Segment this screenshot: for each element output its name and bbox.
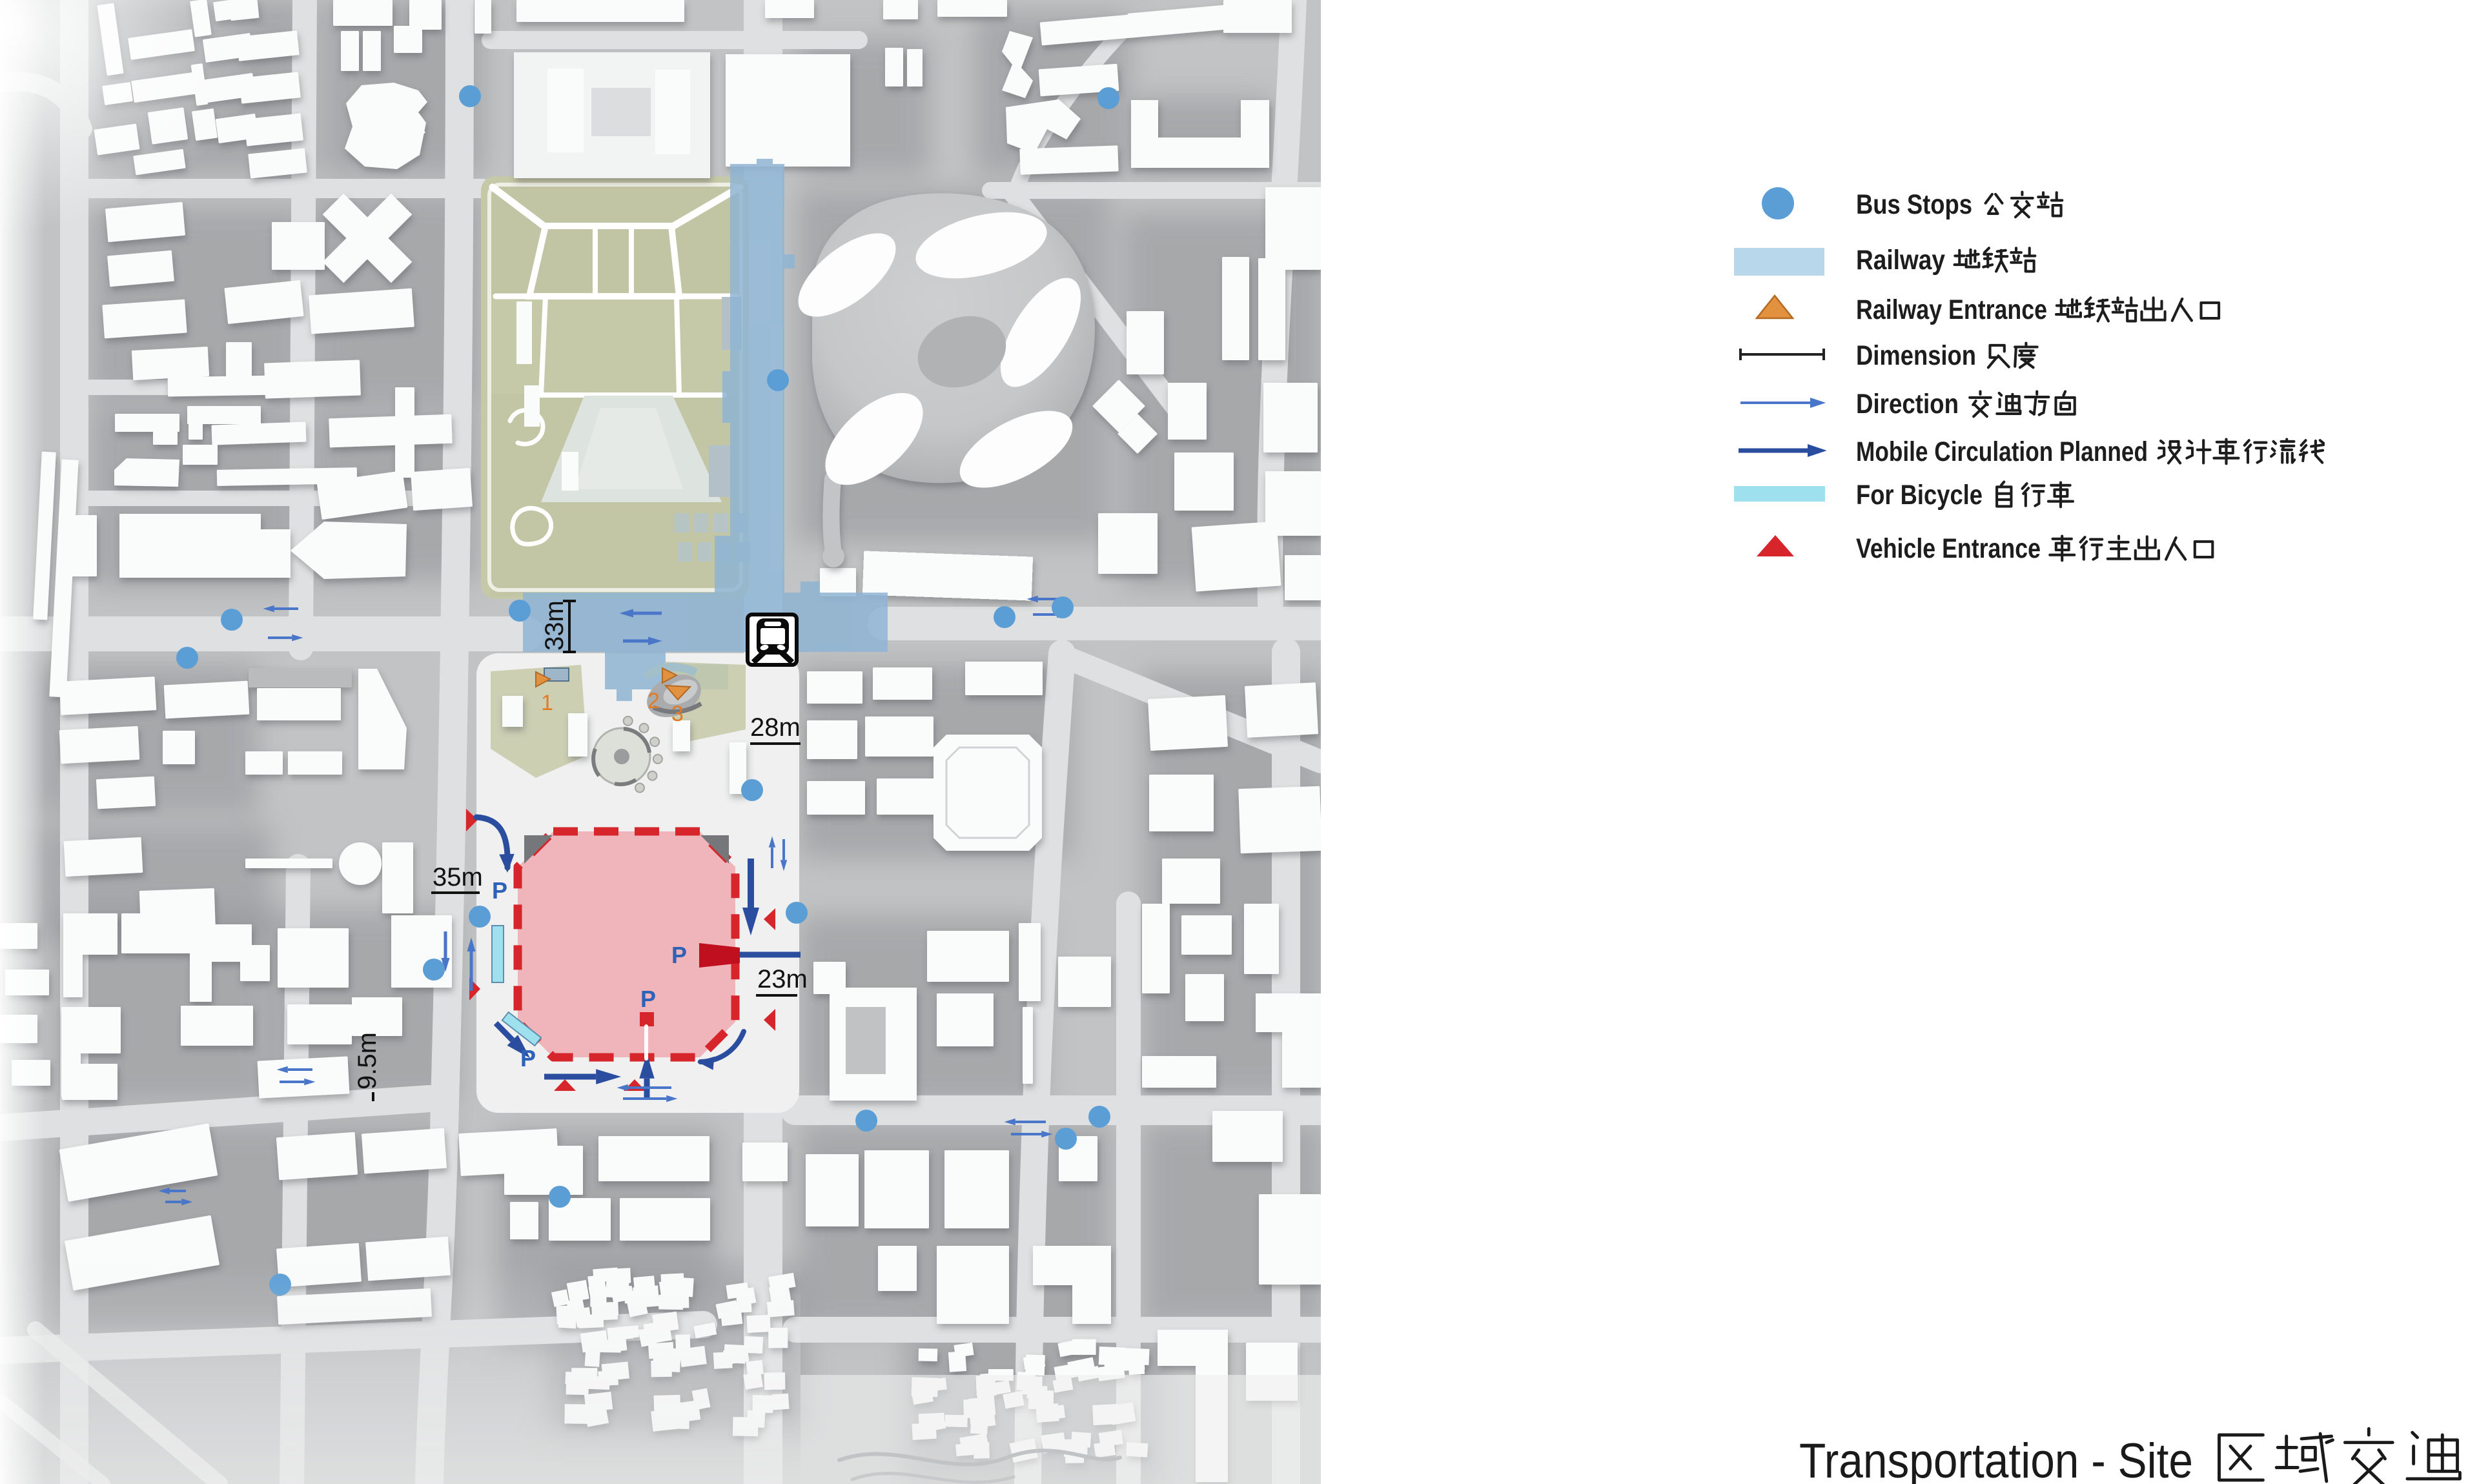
svg-text:2: 2 [648, 689, 660, 713]
svg-text:P: P [492, 877, 507, 904]
svg-text:35m: 35m [433, 863, 483, 891]
svg-text:Railway Entrance: Railway Entrance [1856, 294, 2047, 325]
svg-text:For Bicycle: For Bicycle [1856, 480, 1983, 511]
svg-text:1: 1 [541, 691, 553, 715]
svg-text:23m: 23m [757, 965, 808, 993]
svg-text:Bus Stops: Bus Stops [1856, 189, 1972, 220]
svg-text:33m: 33m [540, 600, 569, 651]
svg-text:Vehicle Entrance: Vehicle Entrance [1856, 533, 2041, 564]
svg-text:P: P [640, 986, 656, 1012]
svg-text:Dimension: Dimension [1856, 340, 1976, 371]
svg-text:Mobile Circulation Planned: Mobile Circulation Planned [1856, 436, 2148, 467]
svg-text:Railway: Railway [1856, 245, 1945, 276]
svg-text:P: P [520, 1045, 536, 1072]
svg-text:P: P [671, 942, 687, 968]
svg-text:3: 3 [671, 702, 684, 726]
svg-text:Transportation - Site: Transportation - Site [1799, 1434, 2193, 1484]
svg-text:Direction: Direction [1856, 389, 1959, 420]
svg-text:28m: 28m [750, 713, 801, 742]
svg-text:9.5m: 9.5m [353, 1032, 382, 1090]
